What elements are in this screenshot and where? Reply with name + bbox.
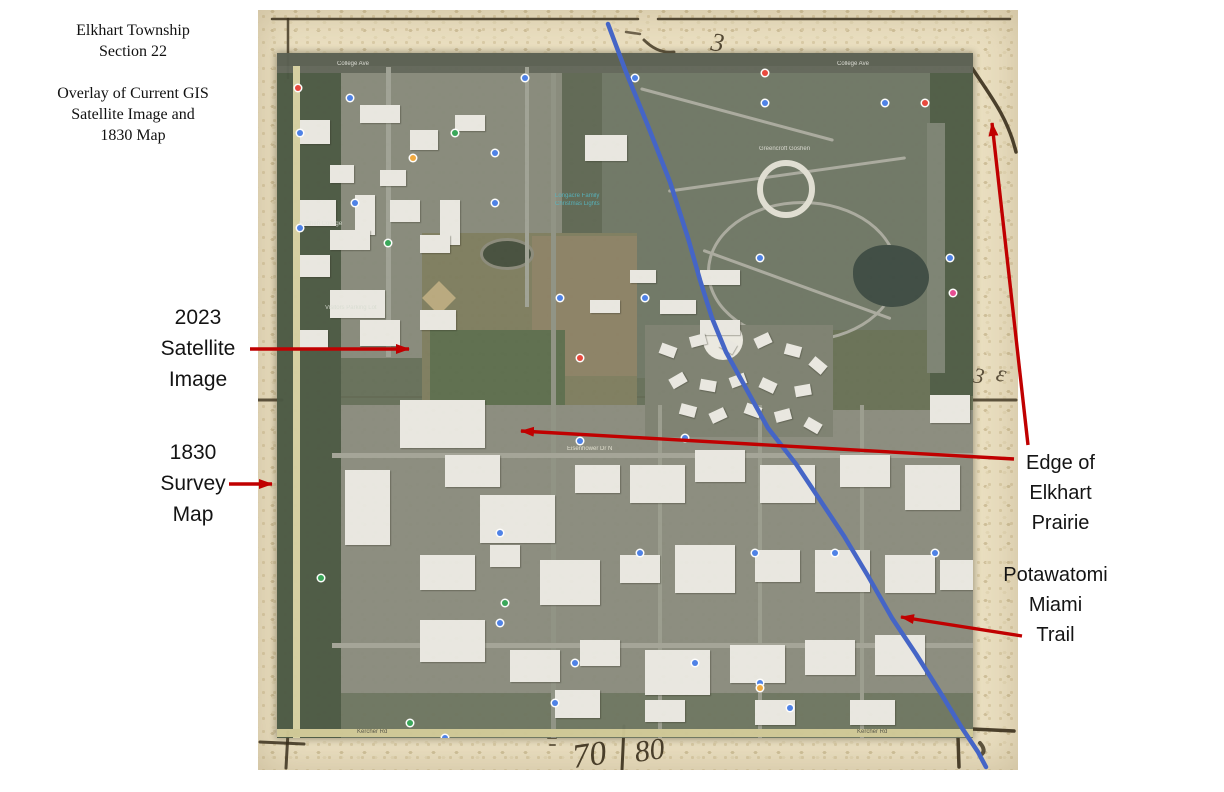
map-pin-icon xyxy=(497,530,503,536)
map-pin-icon xyxy=(757,685,763,691)
old-map-ink-line xyxy=(958,737,959,767)
building xyxy=(420,620,485,662)
annotation-line: Map xyxy=(128,499,258,530)
building xyxy=(630,465,685,503)
map-pin-icon xyxy=(787,705,793,711)
old-map-ink-line xyxy=(980,743,984,754)
map-pin-icon xyxy=(502,600,508,606)
old-map-ink-line xyxy=(626,32,640,34)
building xyxy=(480,495,555,543)
map-pin-icon xyxy=(637,550,643,556)
building xyxy=(630,270,656,283)
title-line: Section 22 xyxy=(28,41,238,62)
building xyxy=(885,555,935,593)
building xyxy=(875,635,925,675)
map-pin-icon xyxy=(922,100,928,106)
building xyxy=(700,320,740,335)
map-pin-icon xyxy=(352,200,358,206)
map-patch xyxy=(430,330,565,410)
building xyxy=(850,700,895,725)
building xyxy=(330,290,385,318)
map-pin-icon xyxy=(932,550,938,556)
building xyxy=(675,545,735,593)
map-micro-label: Goshen College xyxy=(299,221,342,228)
map-pin-icon xyxy=(407,720,413,726)
annotation-line: Miami xyxy=(983,590,1128,620)
old-map-ink-line xyxy=(260,742,304,744)
annotation-line: Edge of xyxy=(1008,448,1113,478)
building xyxy=(695,450,745,482)
annotation-line: Satellite xyxy=(128,333,268,364)
building xyxy=(620,555,660,583)
annotation-1830-survey-map: 1830 Survey Map xyxy=(128,437,258,530)
map-pin-icon xyxy=(452,130,458,136)
map-road xyxy=(525,67,529,307)
title-line: Elkhart Township xyxy=(28,20,238,41)
building xyxy=(455,115,485,131)
map-micro-label: Greencroft Goshen xyxy=(759,146,810,153)
map-patch xyxy=(927,123,945,373)
title-gap xyxy=(28,62,238,83)
building xyxy=(420,310,456,330)
map-micro-label: Longacre Family xyxy=(555,193,599,200)
subtitle-line: Overlay of Current GIS xyxy=(28,83,238,104)
annotation-line: Elkhart xyxy=(1008,478,1113,508)
annotation-line: 2023 xyxy=(128,302,268,333)
map-pin-icon xyxy=(947,255,953,261)
map-pin-icon xyxy=(522,75,528,81)
map-pin-icon xyxy=(692,660,698,666)
building xyxy=(360,105,400,123)
annotation-line: Potawatomi xyxy=(983,560,1128,590)
building xyxy=(510,650,560,682)
building xyxy=(400,400,485,448)
map-pin-icon xyxy=(632,75,638,81)
annotation-line: Trail xyxy=(983,620,1128,650)
map-pin-icon xyxy=(762,70,768,76)
building xyxy=(815,550,870,592)
map-pin-icon xyxy=(572,660,578,666)
map-road xyxy=(293,66,300,738)
building xyxy=(345,470,390,545)
map-pin-icon xyxy=(442,735,448,738)
slide-canvas: 33ε7080 Sec08 College AveCollege AveGosh… xyxy=(0,0,1224,792)
map-micro-label: Christmas Lights xyxy=(555,201,600,208)
annotation-line: Prairie xyxy=(1008,508,1113,538)
building xyxy=(805,640,855,675)
building xyxy=(540,560,600,605)
annotation-line: Image xyxy=(128,364,268,395)
map-pin-icon xyxy=(752,550,758,556)
map-patch xyxy=(853,245,929,307)
building xyxy=(410,130,438,150)
map-pin-icon xyxy=(642,295,648,301)
map-pin-icon xyxy=(557,295,563,301)
building xyxy=(840,455,890,487)
map-micro-label: Kercher Rd xyxy=(857,729,887,736)
building xyxy=(940,560,973,590)
building xyxy=(330,230,370,250)
map-micro-label: College Ave xyxy=(337,61,369,68)
building xyxy=(490,545,520,567)
annotation-line: 1830 xyxy=(128,437,258,468)
building xyxy=(360,320,400,346)
building xyxy=(755,550,800,582)
building xyxy=(445,455,500,487)
old-map-ink-line xyxy=(644,40,674,52)
building xyxy=(755,700,795,725)
map-pin-icon xyxy=(577,355,583,361)
old-map-ink-line xyxy=(972,68,1016,152)
building xyxy=(555,690,600,718)
building xyxy=(420,555,475,590)
map-micro-label: Visitors Parking Lot xyxy=(325,305,377,312)
building xyxy=(590,300,620,313)
building xyxy=(380,170,406,186)
map-pin-icon xyxy=(410,155,416,161)
map-pin-icon xyxy=(385,240,391,246)
map-pin-icon xyxy=(492,150,498,156)
map-micro-label: College Ave xyxy=(837,61,869,68)
subtitle-line: Satellite Image and xyxy=(28,104,238,125)
building xyxy=(645,700,685,722)
building xyxy=(905,465,960,510)
building xyxy=(300,120,330,144)
map-pin-icon xyxy=(497,620,503,626)
annotation-edge-of-elkhart-prairie: Edge of Elkhart Prairie xyxy=(1008,448,1113,538)
annotation-line: Survey xyxy=(128,468,258,499)
building xyxy=(420,235,450,253)
building xyxy=(700,270,740,285)
satellite-image-overlay: Sec08 College AveCollege AveGoshen Colle… xyxy=(277,53,973,738)
building xyxy=(645,650,710,695)
subtitle-line: 1830 Map xyxy=(28,125,238,146)
map-pin-icon xyxy=(295,85,301,91)
map-pin-icon xyxy=(882,100,888,106)
map-pin-icon xyxy=(762,100,768,106)
circular-building xyxy=(757,160,815,218)
annotation-2023-satellite-image: 2023 Satellite Image xyxy=(128,302,268,395)
map-pin-icon xyxy=(757,255,763,261)
old-map-ink-line xyxy=(972,729,1014,731)
building xyxy=(580,640,620,666)
building xyxy=(730,645,785,683)
map-pin-icon xyxy=(492,200,498,206)
building xyxy=(355,195,375,235)
building xyxy=(575,465,620,493)
map-pin-icon xyxy=(318,575,324,581)
building xyxy=(660,300,696,314)
building xyxy=(330,165,354,183)
map-pin-icon xyxy=(682,435,688,441)
slide-title-block: Elkhart Township Section 22 Overlay of C… xyxy=(28,20,238,146)
map-pin-icon xyxy=(950,290,956,296)
map-micro-label: Eisenhower Dr N xyxy=(567,446,612,453)
map-micro-label: Kercher Rd xyxy=(357,729,387,736)
building xyxy=(930,395,970,423)
map-pin-icon xyxy=(297,130,303,136)
annotation-potawatomi-miami-trail: Potawatomi Miami Trail xyxy=(983,560,1128,650)
building xyxy=(390,200,420,222)
building xyxy=(300,255,330,277)
building xyxy=(585,135,627,161)
map-pin-icon xyxy=(347,95,353,101)
building xyxy=(760,465,815,503)
old-map-number: ε xyxy=(994,361,1010,389)
map-pin-icon xyxy=(552,700,558,706)
map-pin-icon xyxy=(577,438,583,444)
map-pin-icon xyxy=(832,550,838,556)
map-road xyxy=(551,73,556,738)
old-map-number: 70 xyxy=(570,735,609,770)
building xyxy=(300,330,328,348)
